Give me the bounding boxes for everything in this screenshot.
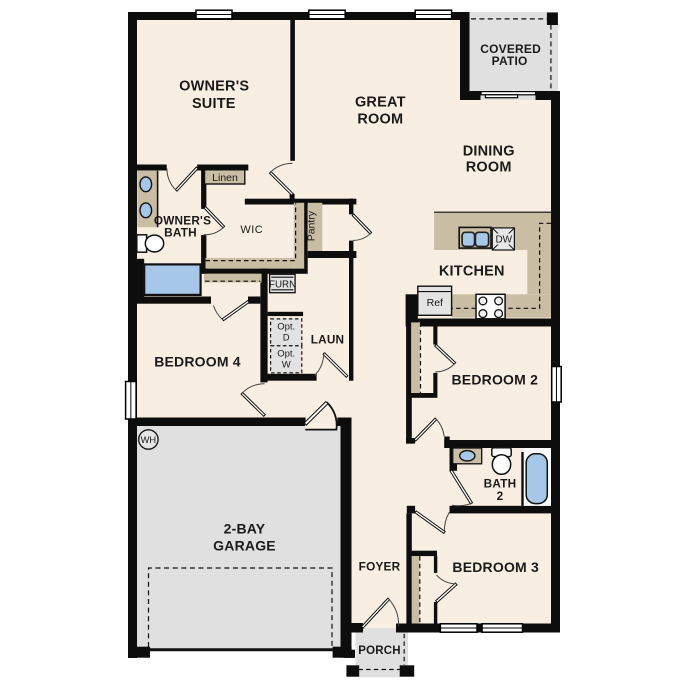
svg-text:ROOM: ROOM bbox=[466, 160, 512, 176]
svg-text:PORCH: PORCH bbox=[358, 645, 401, 657]
svg-text:PATIO: PATIO bbox=[492, 54, 528, 68]
svg-text:DINING: DINING bbox=[463, 144, 515, 160]
svg-text:WIC: WIC bbox=[240, 224, 263, 236]
svg-text:Opt.: Opt. bbox=[277, 322, 295, 333]
svg-text:DW: DW bbox=[495, 235, 512, 246]
svg-text:BEDROOM 2: BEDROOM 2 bbox=[452, 372, 539, 388]
svg-text:2: 2 bbox=[497, 489, 504, 503]
svg-text:Opt.: Opt. bbox=[277, 349, 295, 360]
svg-text:KITCHEN: KITCHEN bbox=[439, 263, 505, 279]
svg-text:GREAT: GREAT bbox=[355, 95, 406, 111]
svg-text:Ref: Ref bbox=[427, 297, 443, 309]
svg-text:2-BAY: 2-BAY bbox=[224, 521, 266, 537]
svg-text:OWNER'S: OWNER'S bbox=[179, 79, 249, 95]
svg-text:BEDROOM 4: BEDROOM 4 bbox=[154, 354, 241, 370]
svg-text:Pantry: Pantry bbox=[306, 210, 318, 241]
svg-text:GARAGE: GARAGE bbox=[213, 537, 276, 553]
svg-text:BEDROOM 3: BEDROOM 3 bbox=[452, 559, 539, 575]
svg-text:LAUN: LAUN bbox=[311, 333, 345, 347]
svg-text:BATH: BATH bbox=[164, 225, 197, 239]
svg-text:Linen: Linen bbox=[212, 172, 238, 184]
svg-text:WH: WH bbox=[141, 435, 157, 445]
svg-text:SUITE: SUITE bbox=[192, 96, 236, 112]
svg-text:FOYER: FOYER bbox=[359, 560, 401, 574]
svg-text:W: W bbox=[282, 360, 291, 371]
svg-text:ROOM: ROOM bbox=[357, 112, 403, 128]
svg-text:D: D bbox=[283, 333, 290, 344]
svg-text:FURN: FURN bbox=[269, 279, 296, 290]
